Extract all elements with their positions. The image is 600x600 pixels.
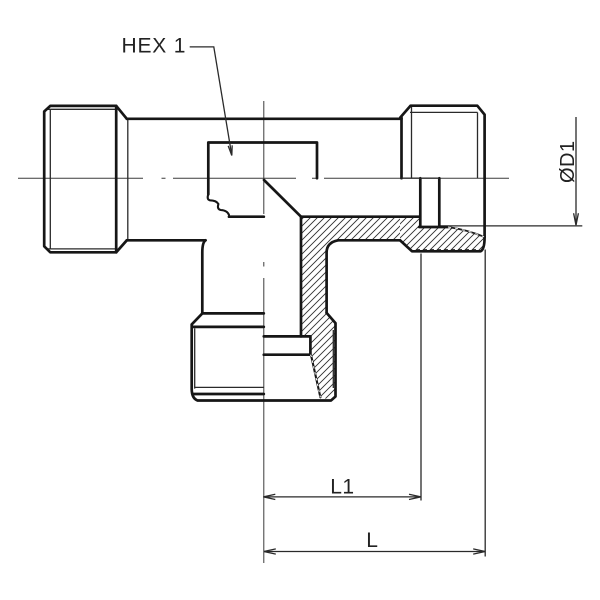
svg-text:L: L bbox=[366, 529, 378, 552]
svg-text:L1: L1 bbox=[330, 476, 354, 499]
svg-text:ØD1: ØD1 bbox=[557, 140, 579, 183]
svg-text:HEX 1: HEX 1 bbox=[122, 35, 187, 58]
